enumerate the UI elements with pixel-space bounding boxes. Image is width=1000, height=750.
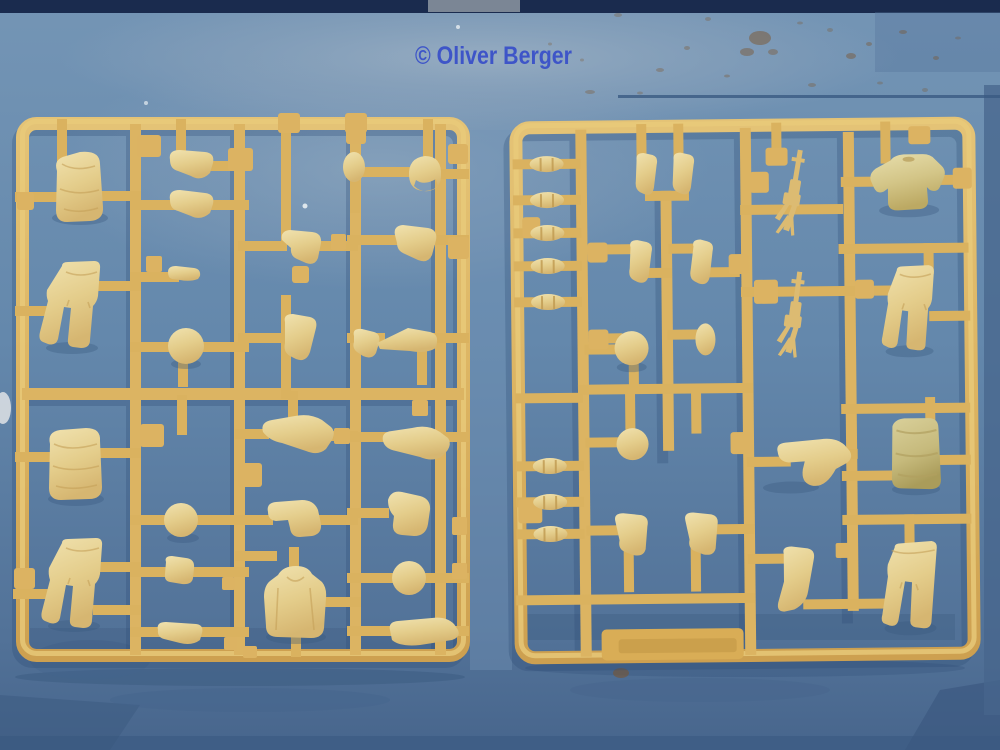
svg-text:© Oliver Berger: © Oliver Berger (415, 42, 572, 70)
